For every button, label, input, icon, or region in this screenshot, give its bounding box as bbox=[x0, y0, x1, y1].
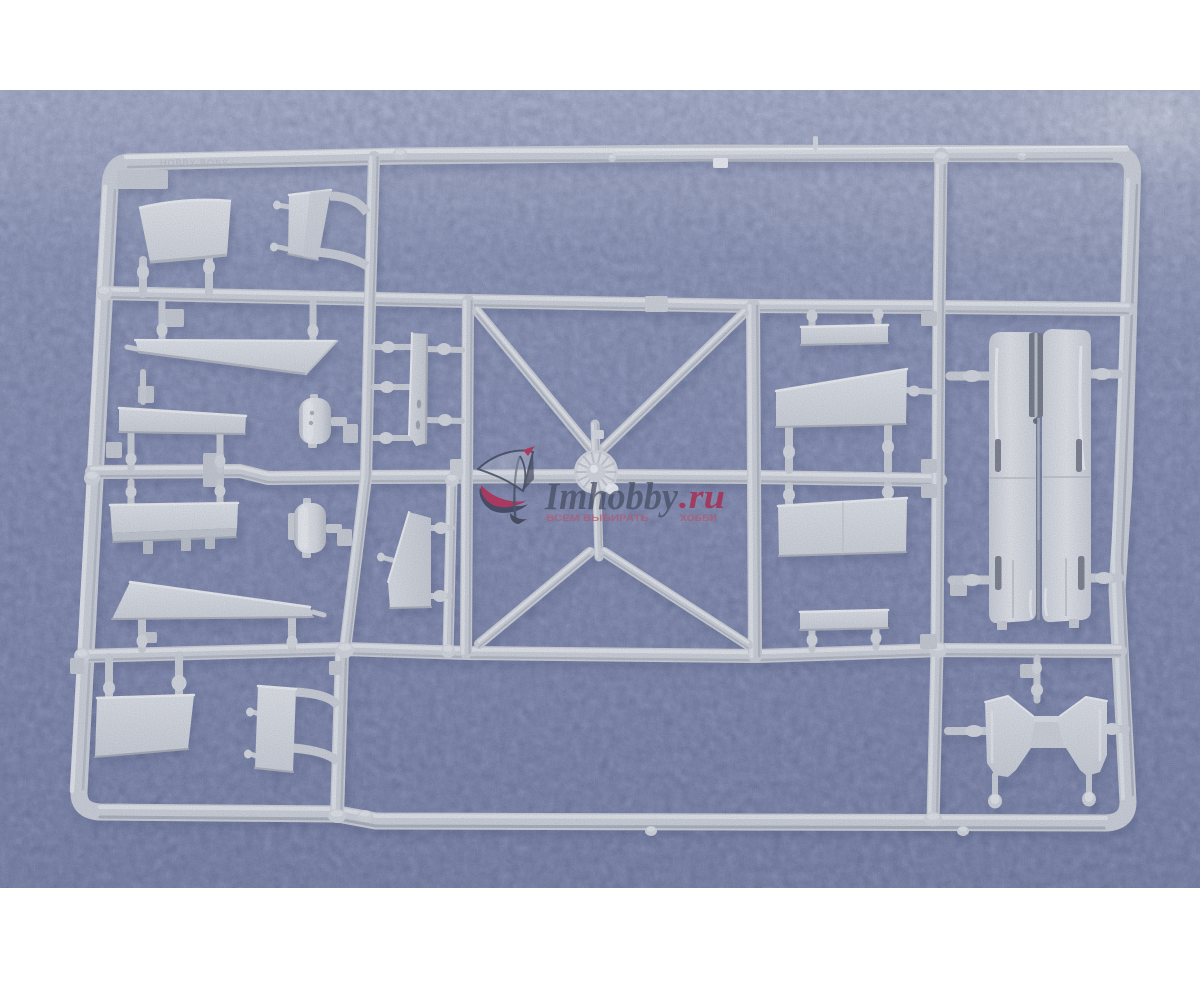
svg-text:ВСЕМ ВЫБИРАТЬ: ВСЕМ ВЫБИРАТЬ bbox=[546, 513, 650, 523]
svg-text:Imhobby: Imhobby bbox=[544, 475, 679, 518]
svg-text:ХОББИ: ХОББИ bbox=[680, 513, 717, 523]
svg-text:.ru: .ru bbox=[679, 477, 725, 516]
